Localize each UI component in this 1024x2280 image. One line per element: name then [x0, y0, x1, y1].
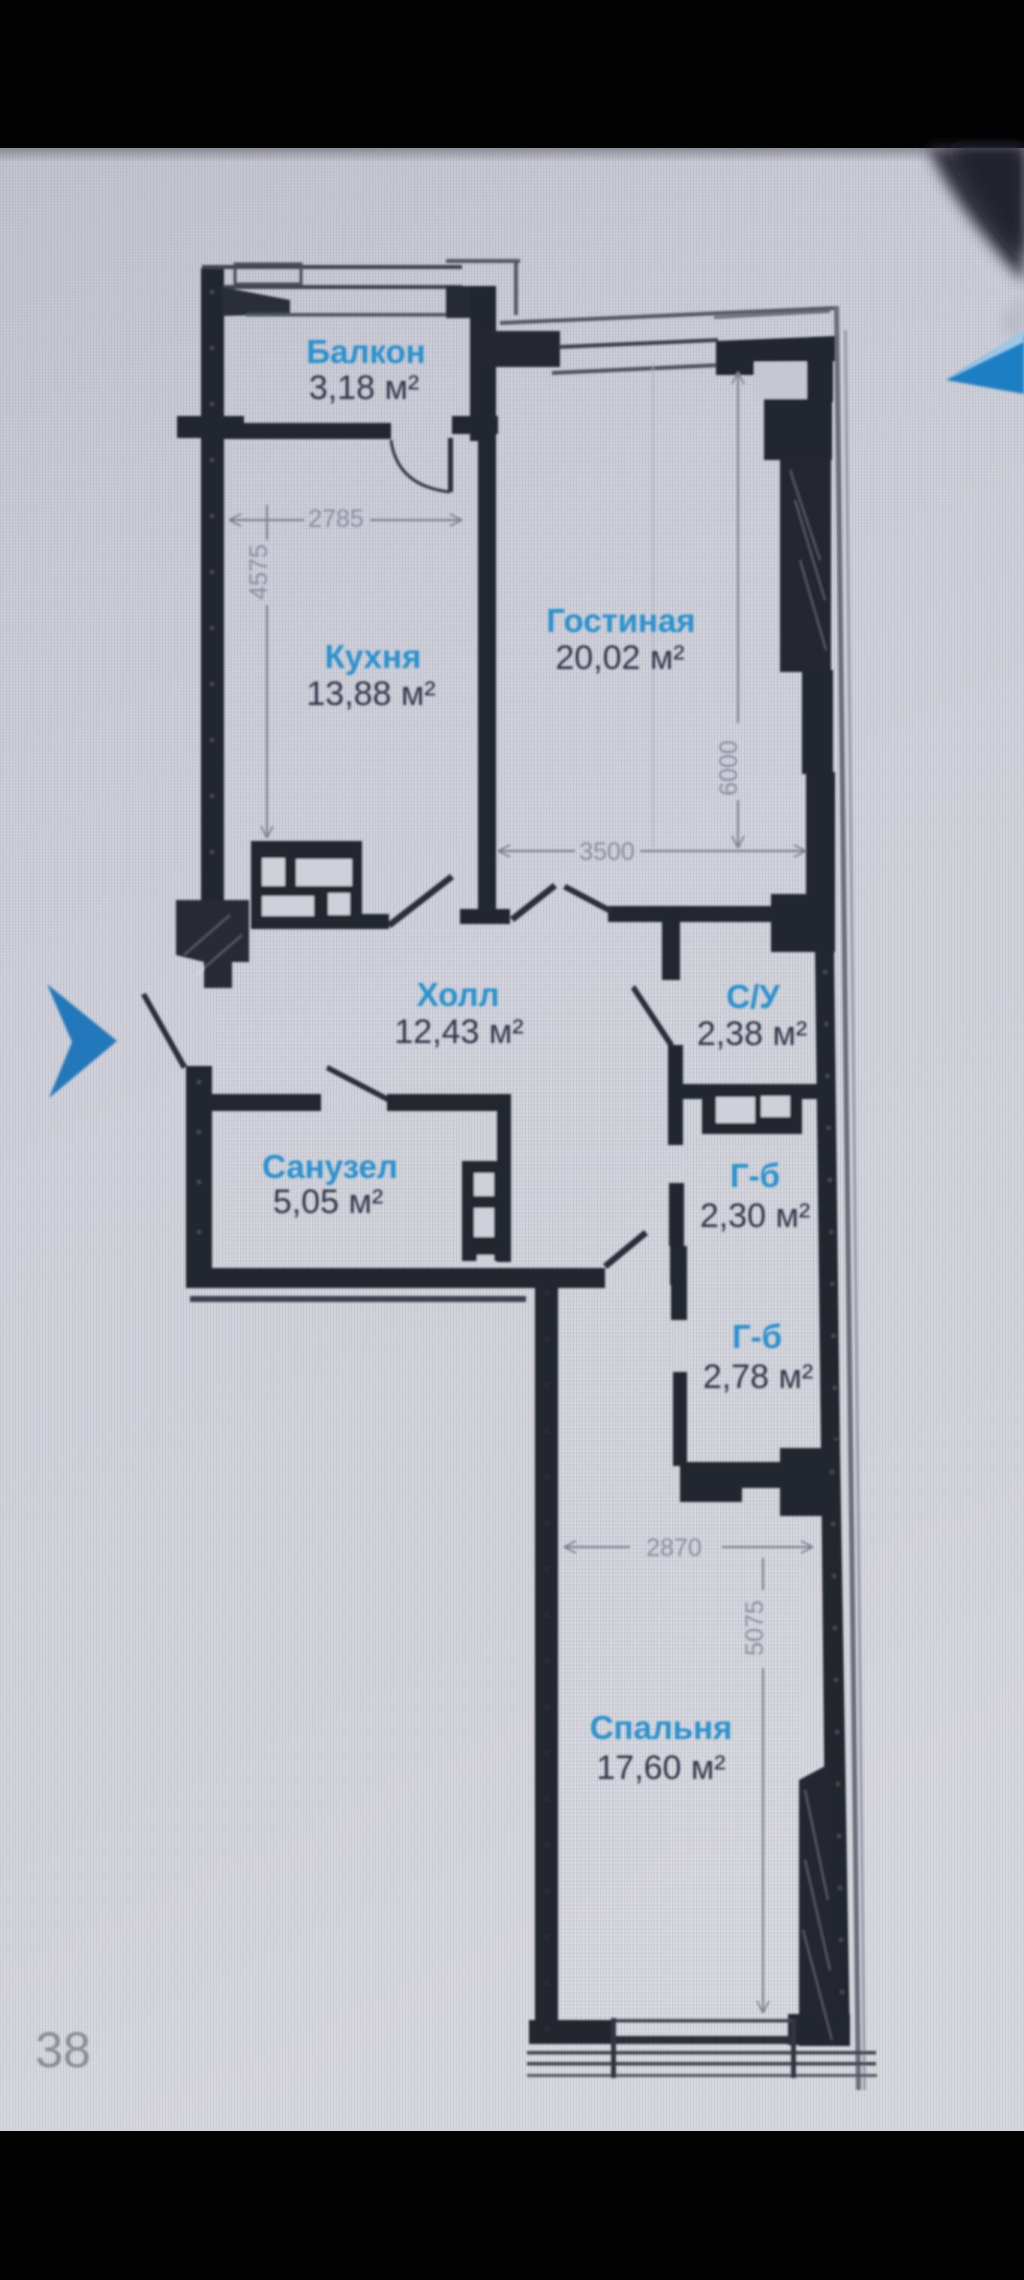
- svg-text:Санузел: Санузел: [262, 1148, 398, 1185]
- svg-text:3500: 3500: [579, 838, 635, 866]
- svg-text:2870: 2870: [646, 1534, 702, 1562]
- svg-text:2785: 2785: [308, 505, 364, 533]
- svg-text:4575: 4575: [245, 544, 273, 600]
- svg-text:2,38 м²: 2,38 м²: [697, 1015, 807, 1053]
- svg-text:Балкон: Балкон: [306, 333, 425, 370]
- svg-text:6000: 6000: [715, 740, 743, 796]
- svg-text:12,43 м²: 12,43 м²: [394, 1013, 523, 1051]
- svg-text:2,78 м²: 2,78 м²: [703, 1358, 813, 1396]
- svg-text:13,88 м²: 13,88 м²: [306, 675, 435, 713]
- svg-text:Г-б: Г-б: [732, 1318, 782, 1355]
- svg-text:38: 38: [35, 2022, 91, 2078]
- svg-text:Кухня: Кухня: [325, 638, 421, 675]
- svg-text:С/У: С/У: [726, 978, 780, 1015]
- svg-text:2,30 м²: 2,30 м²: [700, 1197, 810, 1235]
- svg-text:3,18 м²: 3,18 м²: [309, 369, 419, 407]
- svg-text:20,02 м²: 20,02 м²: [555, 639, 684, 677]
- svg-text:Гостиная: Гостиная: [546, 602, 695, 639]
- svg-text:Г-б: Г-б: [730, 1157, 780, 1194]
- svg-text:Холл: Холл: [417, 976, 500, 1013]
- svg-text:5075: 5075: [741, 1600, 769, 1656]
- svg-text:Спальня: Спальня: [590, 1709, 733, 1746]
- svg-text:17,60 м²: 17,60 м²: [596, 1749, 725, 1787]
- svg-text:5,05 м²: 5,05 м²: [273, 1183, 383, 1221]
